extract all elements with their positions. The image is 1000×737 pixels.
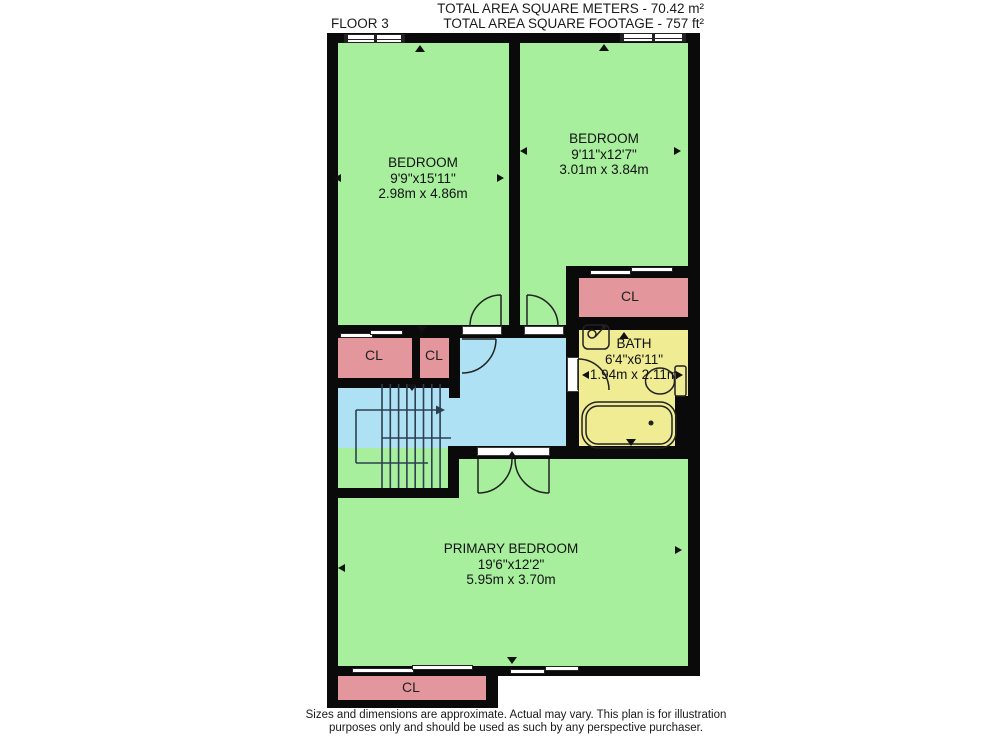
dimension-arrow-icon	[417, 326, 427, 333]
total-area-metric: TOTAL AREA SQUARE METERS - 70.42 m²	[437, 2, 704, 17]
dimension-arrow-icon	[582, 371, 589, 379]
dimension-arrow-icon	[334, 174, 341, 182]
dimension-arrow-icon	[674, 147, 681, 155]
wall-segment	[448, 446, 459, 498]
wall-segment	[688, 33, 700, 676]
dimension-arrow-icon	[599, 44, 609, 51]
floorplan-canvas: FLOOR 3 TOTAL AREA SQUARE METERS - 70.42…	[0, 0, 1000, 737]
dimension-arrow-icon	[415, 45, 425, 52]
sliding-door-icon	[340, 333, 373, 338]
dimension-arrow-icon	[676, 371, 683, 379]
sliding-door-icon	[352, 668, 414, 673]
wall-segment	[509, 33, 520, 338]
dimension-arrow-icon	[507, 657, 517, 664]
door-threshold	[567, 357, 579, 392]
window-icon	[344, 34, 405, 43]
total-area-block: TOTAL AREA SQUARE METERS - 70.42 m² TOTA…	[437, 2, 704, 31]
sliding-door-icon	[631, 267, 673, 272]
wall-segment	[327, 33, 338, 676]
wall-segment	[327, 378, 458, 388]
room-label-bedroom-right: BEDROOM 9'11"x12'7" 3.01m x 3.84m	[559, 131, 648, 178]
closet-label: CL	[621, 288, 639, 304]
room-label-primary-bedroom: PRIMARY BEDROOM 19'6"x12'2" 5.95m x 3.70…	[444, 541, 579, 588]
window-icon	[620, 33, 686, 42]
total-area-imperial: TOTAL AREA SQUARE FOOTAGE - 757 ft²	[437, 17, 704, 32]
dimension-arrow-icon	[497, 174, 504, 182]
closet-label: CL	[425, 347, 443, 363]
dimension-arrow-icon	[619, 332, 629, 339]
dimension-arrow-icon	[407, 384, 417, 391]
floor-label: FLOOR 3	[331, 16, 389, 31]
wall-segment	[327, 488, 458, 498]
closet-label: CL	[402, 679, 420, 695]
wall-segment	[675, 396, 689, 448]
dimension-arrow-icon	[507, 451, 517, 458]
dimension-arrow-icon	[520, 147, 527, 155]
sliding-door-icon	[545, 666, 579, 671]
sliding-door-icon	[590, 270, 631, 275]
sliding-door-icon	[510, 669, 545, 674]
door-threshold	[462, 326, 502, 335]
dimension-arrow-icon	[626, 439, 636, 446]
room-label-bath: BATH 6'4"x6'11" 1.94m x 2.11m	[590, 336, 678, 383]
dimension-arrow-icon	[675, 546, 682, 554]
wall-segment	[327, 700, 498, 708]
sliding-door-icon	[370, 330, 403, 335]
dimension-arrow-icon	[338, 564, 345, 572]
sliding-door-icon	[412, 665, 473, 670]
closet-label: CL	[365, 347, 383, 363]
room-label-bedroom-left: BEDROOM 9'9"x15'11" 2.98m x 4.86m	[378, 155, 467, 202]
door-threshold	[524, 326, 564, 335]
disclaimer: Sizes and dimensions are approximate. Ac…	[306, 709, 727, 735]
wall-segment	[566, 317, 700, 330]
